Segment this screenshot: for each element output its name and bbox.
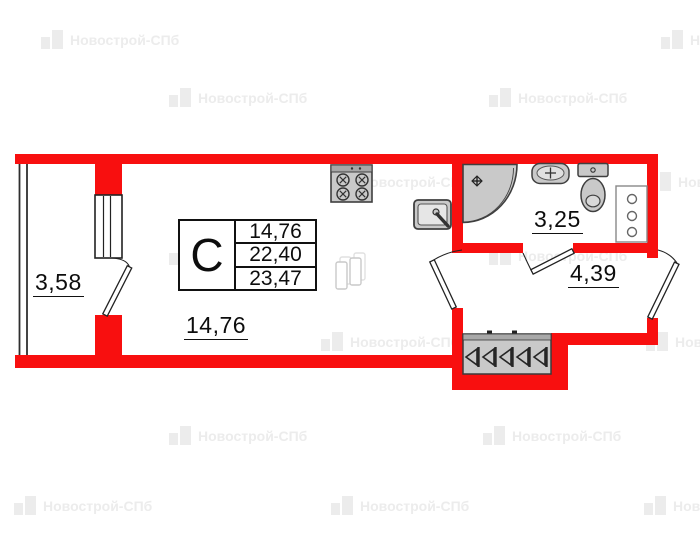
unit-info-table: С 14,76 22,40 23,47 [178,219,317,291]
wardrobe-icon [463,331,551,375]
area-overall-value: 23,47 [236,266,315,289]
stove-icon [331,165,372,202]
loggia-area-label: 3,58 [33,271,84,297]
loggia-door [103,258,132,316]
entrance-door [648,250,679,319]
area-living-value: 14,76 [236,221,315,242]
loggia-window [95,195,122,258]
unit-type-label: С [180,221,236,289]
loggia-glazing-window [20,164,28,355]
bathroom-area-label: 3,25 [532,208,583,234]
kitchen-sink-icon [414,200,451,229]
room-door [430,250,462,309]
living-room-area-label: 14,76 [184,314,248,340]
area-total-value: 22,40 [236,242,315,265]
toilet-icon [578,164,608,212]
shower-icon [463,165,517,223]
bathroom-door [523,249,574,274]
floor-plan: Новострой-СПб Новострой-СПб Новострой-СП… [0,0,700,533]
washbasin-icon [532,164,569,184]
fridge-icon [336,253,365,289]
hallway-area-label: 4,39 [568,262,619,288]
utility-shaft-icon [616,186,647,242]
